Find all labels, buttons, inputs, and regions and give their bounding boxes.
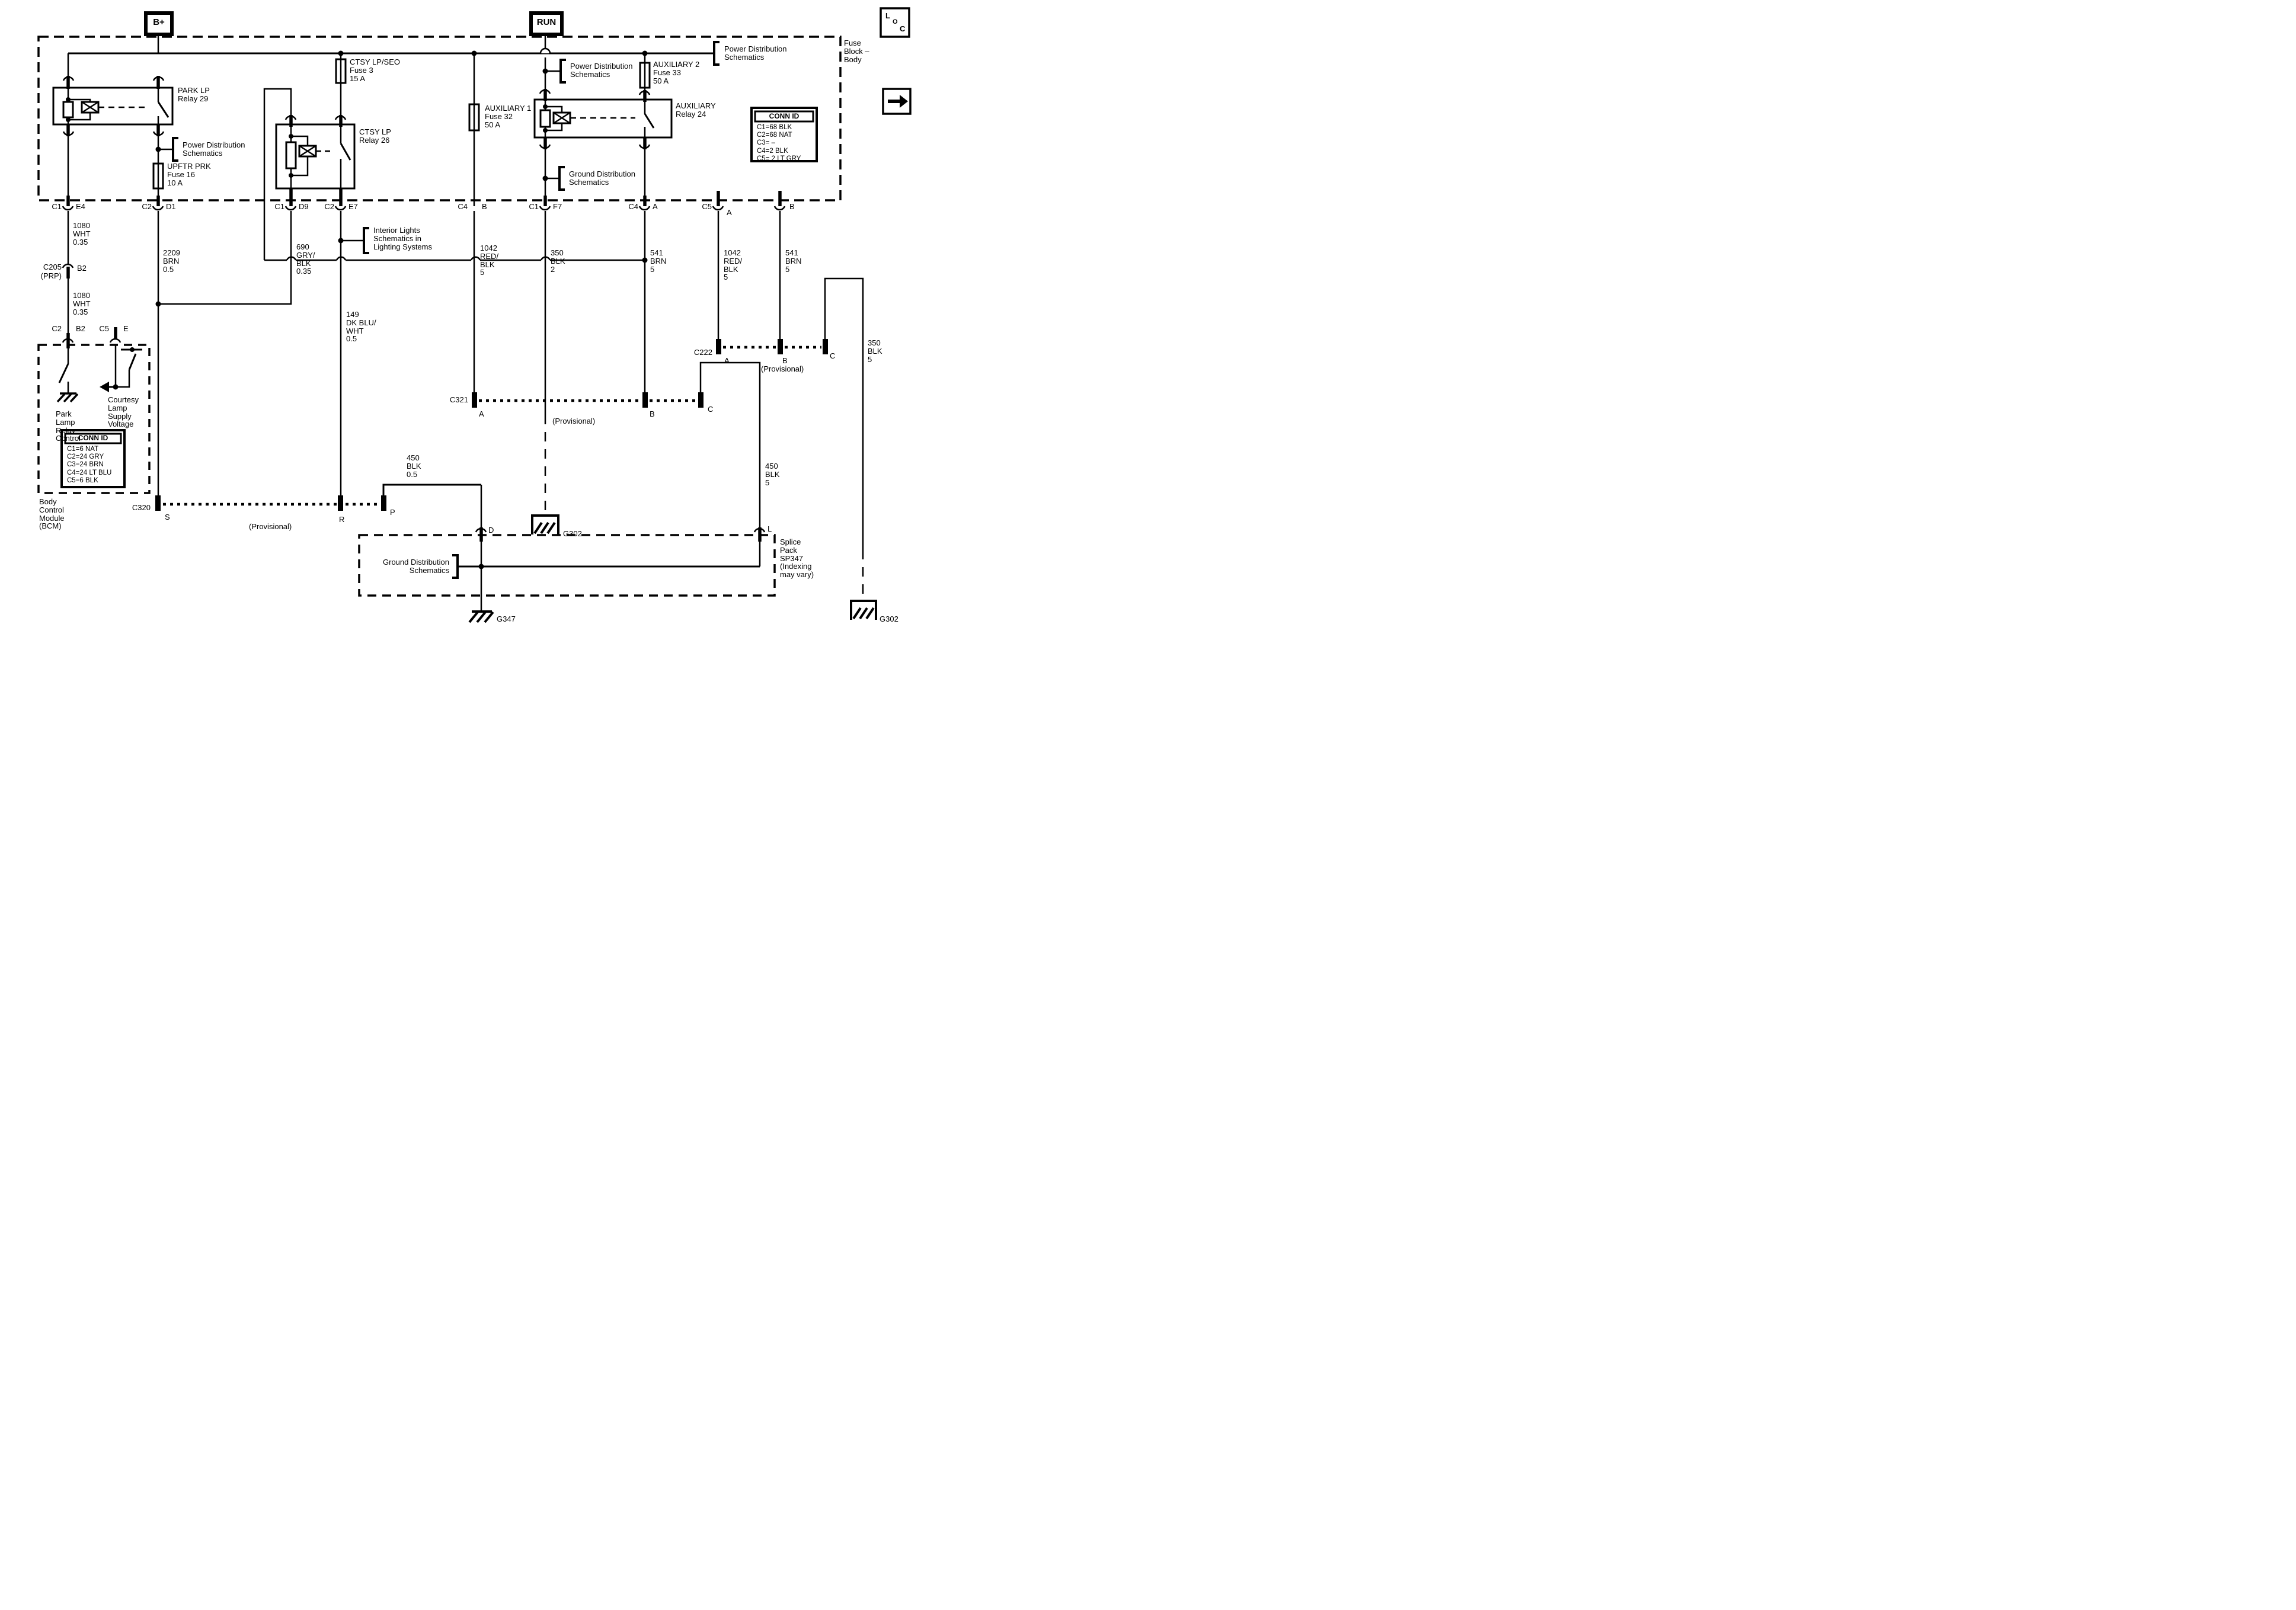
wire-label-350-a: 350BLK2	[551, 249, 565, 273]
fuse-3-label: CTSY LP/SEOFuse 315 A	[350, 58, 400, 82]
ctsy-coil-feed-wire	[264, 89, 291, 260]
fuse-33-label: AUXILIARY 2Fuse 3350 A	[653, 60, 699, 85]
pin-c4-b-conn: C4	[458, 203, 468, 211]
aux-relay-label: AUXILIARYRelay 24	[676, 102, 716, 119]
wire-label-1042-b: 1042RED/BLK5	[724, 249, 742, 281]
pin-c2-e7-term: E7	[348, 203, 358, 211]
wire-label-450-b: 450BLK5	[765, 462, 780, 486]
c321-pin-c: C	[708, 405, 713, 414]
c321-pin-a: A	[479, 410, 484, 418]
wire-label-2209: 2209BRN0.5	[163, 249, 180, 273]
pin-c1-f7-term: F7	[553, 203, 562, 211]
c321-provisional: (Provisional)	[552, 417, 595, 425]
c205-pin: B2	[77, 264, 87, 273]
splice-pin-l: L	[768, 525, 772, 533]
c321-name: C321	[450, 396, 468, 404]
pin-c1-d9-conn: C1	[274, 203, 284, 211]
wiring-diagram-page: B+ RUN FuseBlock –Body L O C PARK LPRela…	[0, 0, 919, 646]
pin-bcm-e-term: E	[123, 325, 129, 333]
wire-label-450-a: 450BLK0.5	[407, 454, 421, 478]
wire-label-1080-a: 1080WHT0.35	[73, 222, 91, 246]
callout-power-dist-3: Power DistributionSchematics	[724, 45, 787, 62]
c320-pin-p: P	[390, 508, 395, 517]
splice-pin-d: D	[488, 526, 494, 534]
fuse-32-label: AUXILIARY 1Fuse 3250 A	[485, 104, 531, 129]
wire-label-1042-a: 1042RED/BLK5	[480, 244, 498, 277]
run-label: RUN	[532, 18, 561, 27]
g302-ground-symbol-mid	[532, 516, 558, 534]
park-relay-label: PARK LPRelay 29	[178, 87, 210, 103]
pin-c4-b-term: B	[482, 203, 487, 211]
pin-bcm-c5-conn: C5	[99, 325, 109, 333]
bplus-label: B+	[148, 18, 170, 27]
park-lamp-relay-control-label: ParkLampRelayControl	[56, 410, 81, 443]
pin-c1-f7-conn: C1	[529, 203, 539, 211]
pin-b-term: B	[789, 203, 795, 211]
wire-350-blk-5	[825, 279, 863, 550]
wire-label-1080-b: 1080WHT0.35	[73, 292, 91, 316]
callout-power-dist-2: Power DistributionSchematics	[570, 62, 633, 79]
next-page-icon[interactable]	[883, 89, 910, 114]
fuse-16-label: UPFTR PRKFuse 1610 A	[167, 162, 211, 187]
bcm-ground-symbol	[57, 393, 78, 402]
g302-ground-symbol-right	[851, 601, 876, 620]
ctsy-lp-relay	[276, 115, 354, 188]
g302-mid-label: G302	[563, 530, 582, 538]
pin-bcm-b2-term: B2	[76, 325, 85, 333]
loc-icon-c: C	[900, 25, 905, 33]
callout-power-dist-1: Power DistributionSchematics	[183, 141, 245, 158]
courtesy-supply-arrow	[100, 382, 109, 392]
c205-color: (PRP)	[41, 272, 62, 280]
c222-pin-b: B	[782, 357, 788, 365]
wire-label-541-b: 541BRN5	[785, 249, 801, 273]
c320-pin-r: R	[339, 516, 344, 524]
c205-name: C205	[43, 263, 62, 271]
auxiliary-relay	[535, 100, 671, 137]
pin-c1-e4-term: E4	[76, 203, 85, 211]
pin-c4-a-term: A	[653, 203, 658, 211]
c320-name: C320	[132, 504, 151, 512]
pin-c4-a-conn: C4	[628, 203, 638, 211]
bcm-label: BodyControlModule(BCM)	[39, 498, 65, 530]
loc-icon-l: L	[885, 12, 890, 20]
g347-ground-symbol	[469, 612, 493, 622]
fuse-block-label: FuseBlock –Body	[844, 39, 869, 63]
c222-pin-c: C	[830, 352, 835, 360]
c320-pin-s: S	[165, 513, 170, 521]
pin-c5-a-conn: C5	[702, 203, 712, 211]
pin-c2-d1-term: D1	[166, 203, 176, 211]
pin-c1-d9-term: D9	[299, 203, 309, 211]
wire-label-149: 149DK BLU/WHT0.5	[346, 311, 376, 343]
callout-ground-dist-1: Ground DistributionSchematics	[569, 170, 635, 187]
c321-pin-b: B	[650, 410, 655, 418]
conn-id-block-rows: C1=68 BLKC2=68 NATC3= –C4=2 BLKC5= 2 LT …	[757, 124, 801, 163]
pin-bcm-c2-conn: C2	[52, 325, 62, 333]
loc-icon-o: O	[893, 19, 898, 26]
g347-label: G347	[497, 615, 516, 623]
callout-ground-dist-2: Ground DistributionSchematics	[383, 558, 449, 575]
wire-label-541-a: 541BRN5	[650, 249, 666, 273]
courtesy-lamp-supply-label: CourtesyLampSupplyVoltage	[108, 396, 139, 428]
wire-450-blk-5	[701, 363, 760, 527]
c222-provisional: (Provisional)	[761, 365, 804, 373]
pin-c5-a-term: A	[727, 209, 732, 217]
wire-450-blk-05	[383, 485, 481, 495]
c320-provisional: (Provisional)	[249, 523, 292, 531]
c222-pin-a: A	[724, 357, 730, 365]
callout-bracket	[173, 138, 178, 161]
callout-interior-lights: Interior LightsSchematics inLighting Sys…	[373, 226, 432, 251]
park-lp-relay	[53, 76, 172, 136]
conn-id-bcm-rows: C1=6 NATC2=24 GRYC3=24 BRNC4=24 LT BLUC5…	[67, 446, 111, 485]
ctsy-relay-label: CTSY LPRelay 26	[359, 128, 391, 145]
g302-right-label: G302	[880, 615, 898, 623]
pin-c2-d1-conn: C2	[142, 203, 152, 211]
wire-label-690: 690GRY/BLK0.35	[296, 243, 315, 276]
wire-label-350-b: 350BLK5	[868, 339, 882, 363]
c222-name: C222	[694, 348, 712, 357]
pin-c2-e7-conn: C2	[324, 203, 334, 211]
conn-id-block-title: CONN ID	[755, 113, 813, 120]
splice-pack-label: SplicePackSP347(Indexingmay vary)	[780, 538, 814, 579]
pin-c1-e4-conn: C1	[52, 203, 62, 211]
